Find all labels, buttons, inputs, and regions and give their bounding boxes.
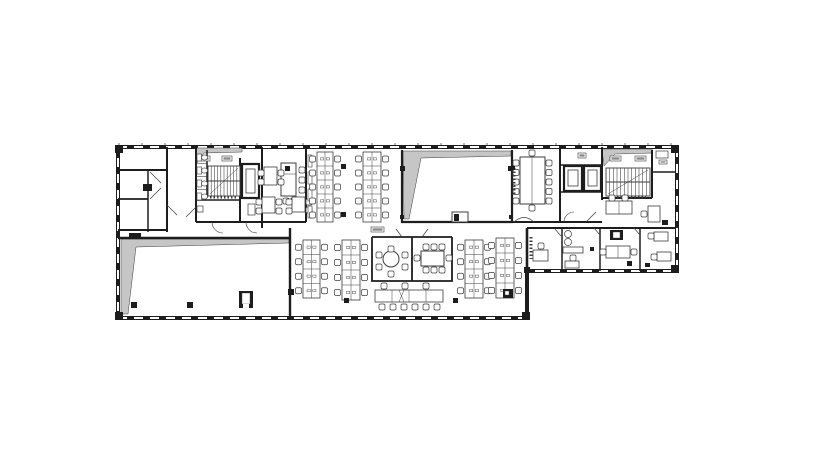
column — [453, 298, 458, 303]
low-table — [563, 247, 583, 253]
chair — [376, 252, 382, 258]
column — [341, 212, 346, 217]
column — [341, 164, 346, 169]
cafe-table — [264, 167, 277, 185]
cabinet — [662, 220, 668, 225]
chair — [570, 255, 576, 261]
column — [131, 302, 137, 308]
chair — [402, 264, 408, 270]
chair — [529, 205, 535, 211]
level-label-chip — [371, 227, 384, 232]
chair — [402, 252, 408, 258]
chair — [529, 150, 535, 156]
cabinet — [627, 261, 632, 266]
desk — [657, 252, 671, 261]
level-label-chip — [659, 160, 667, 164]
column — [400, 166, 405, 171]
elevator-car — [588, 170, 597, 186]
chair — [651, 254, 657, 260]
cabinet — [645, 263, 650, 267]
small-table — [248, 204, 255, 215]
stair-right — [606, 168, 650, 196]
chair — [388, 246, 394, 252]
column — [400, 215, 404, 219]
corner-pier — [671, 265, 679, 273]
chair — [538, 243, 544, 249]
level-label-chip — [578, 153, 586, 158]
stool — [299, 167, 305, 193]
cafe-table — [262, 197, 275, 213]
duct-shaft — [143, 184, 152, 191]
level-label-chip — [635, 156, 646, 161]
column — [509, 215, 513, 219]
copier-top — [613, 232, 620, 238]
wc-sink — [197, 206, 203, 212]
level-label-chip — [610, 156, 621, 161]
duct-shaft — [129, 233, 141, 238]
desk — [565, 261, 579, 268]
lounge-chair — [565, 231, 572, 238]
chair — [423, 244, 445, 250]
column — [344, 298, 349, 303]
elevator-car — [568, 170, 578, 186]
chair — [388, 271, 394, 277]
level-label-chip — [222, 156, 232, 161]
cafe-table — [292, 197, 305, 212]
chair — [641, 211, 647, 217]
corner-pier — [115, 312, 123, 320]
small-table — [656, 151, 668, 158]
column — [187, 302, 193, 308]
stair-left — [208, 166, 240, 196]
corner-pier — [524, 267, 530, 273]
conference-table — [520, 157, 545, 204]
corner-pier — [671, 145, 679, 153]
chair — [600, 249, 606, 255]
desk — [533, 250, 548, 261]
shaft-box-inner — [242, 293, 250, 304]
kitchen-sink — [285, 166, 290, 171]
desk — [648, 206, 660, 222]
meeting-table-round — [383, 251, 399, 267]
chair — [414, 255, 420, 261]
chair — [446, 255, 452, 261]
corner-pier — [522, 312, 530, 320]
column — [288, 289, 294, 295]
desk — [654, 232, 668, 241]
floor-plan-svg — [0, 0, 818, 466]
chair — [648, 233, 654, 239]
chair — [376, 264, 382, 270]
chair — [631, 249, 637, 255]
floor-box-inner — [505, 291, 509, 295]
column — [511, 166, 515, 170]
shaft-box-opening — [243, 304, 249, 309]
elevator-left-car — [246, 169, 255, 193]
chair — [423, 267, 445, 273]
floor-plan-canvas — [0, 0, 818, 466]
corner-pier — [115, 145, 123, 153]
column — [590, 247, 594, 251]
lounge-chair — [565, 239, 572, 246]
void-room-door-jamb — [454, 214, 459, 221]
meeting-table-rect — [421, 251, 444, 266]
